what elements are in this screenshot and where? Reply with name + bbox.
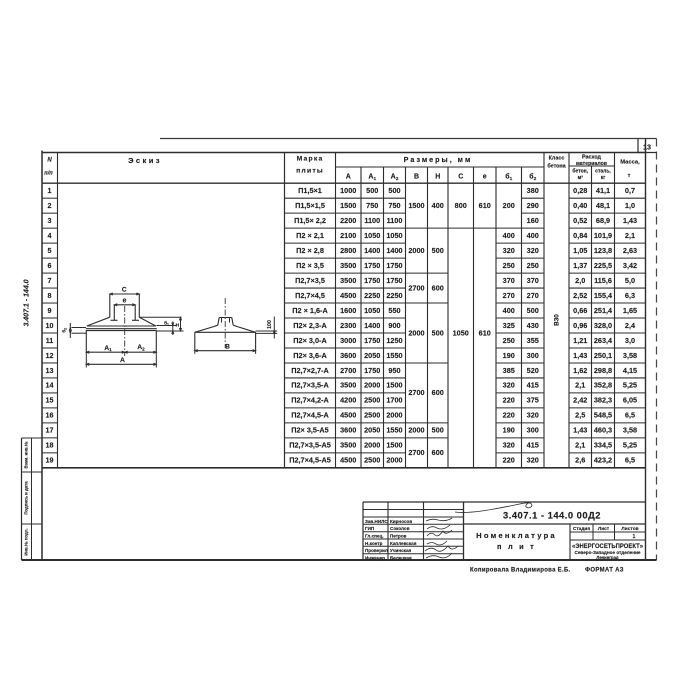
svg-text:1750: 1750 (364, 366, 380, 375)
svg-text:3,58: 3,58 (623, 426, 637, 435)
svg-text:С: С (458, 174, 463, 181)
svg-text:0,40: 0,40 (573, 201, 587, 210)
svg-text:375: 375 (527, 396, 539, 405)
svg-text:А: А (346, 174, 351, 181)
svg-text:П2,7×4,2-А: П2,7×4,2-А (291, 396, 329, 405)
svg-text:6: 6 (48, 261, 52, 270)
svg-text:1,05: 1,05 (573, 246, 587, 255)
svg-text:400: 400 (503, 231, 515, 240)
svg-text:190: 190 (503, 426, 515, 435)
svg-text:Каплевская: Каплевская (390, 541, 417, 546)
svg-text:2,52: 2,52 (573, 291, 587, 300)
svg-text:1000: 1000 (340, 186, 356, 195)
svg-text:«ЭНЕРГОСЕТЬПРОЕКТ»: «ЭНЕРГОСЕТЬПРОЕКТ» (572, 543, 643, 550)
svg-text:4500: 4500 (340, 456, 356, 465)
svg-text:Подпись и дата: Подпись и дата (23, 481, 28, 515)
svg-text:9: 9 (48, 306, 52, 315)
svg-text:1750: 1750 (386, 261, 402, 270)
svg-text:123,8: 123,8 (594, 246, 612, 255)
svg-text:1500: 1500 (386, 381, 402, 390)
svg-text:2700: 2700 (408, 448, 424, 457)
svg-text:1050: 1050 (453, 328, 469, 337)
svg-text:1500: 1500 (408, 201, 424, 210)
svg-text:320: 320 (503, 381, 515, 390)
svg-text:250: 250 (503, 261, 515, 270)
svg-text:Эскиз: Эскиз (128, 156, 162, 165)
svg-text:Соколов: Соколов (390, 526, 410, 531)
svg-text:1: 1 (633, 534, 636, 540)
svg-text:1,43: 1,43 (573, 351, 587, 360)
svg-text:1750: 1750 (364, 336, 380, 345)
svg-text:3.407.1 - 144.0 00Д2: 3.407.1 - 144.0 00Д2 (503, 510, 601, 521)
svg-text:2000: 2000 (408, 426, 424, 435)
svg-text:1,65: 1,65 (623, 306, 637, 315)
svg-text:Марка: Марка (297, 156, 324, 163)
svg-text:250: 250 (527, 261, 539, 270)
svg-text:В30: В30 (554, 314, 561, 326)
svg-text:П2 × 2,8: П2 × 2,8 (296, 246, 324, 255)
svg-text:2000: 2000 (408, 328, 424, 337)
svg-text:Проверил: Проверил (365, 548, 388, 553)
svg-text:2,63: 2,63 (623, 246, 637, 255)
svg-text:900: 900 (388, 321, 400, 330)
svg-text:11: 11 (46, 336, 54, 345)
svg-text:320: 320 (527, 411, 539, 420)
svg-text:5,25: 5,25 (623, 441, 637, 450)
svg-text:П2,7×3,5-А5: П2,7×3,5-А5 (289, 441, 331, 450)
svg-text:10: 10 (46, 321, 54, 330)
svg-text:N: N (47, 158, 52, 164)
svg-text:300: 300 (527, 351, 539, 360)
svg-text:115,6: 115,6 (594, 276, 612, 285)
svg-text:Расход: Расход (582, 155, 602, 161)
svg-text:П2,7×3,5-А: П2,7×3,5-А (291, 381, 329, 390)
svg-text:1600: 1600 (340, 306, 356, 315)
svg-text:е: е (483, 174, 487, 181)
svg-text:750: 750 (388, 201, 400, 210)
svg-text:3500: 3500 (340, 276, 356, 285)
svg-text:355: 355 (527, 336, 539, 345)
svg-text:В: В (414, 174, 419, 181)
svg-text:430: 430 (527, 321, 539, 330)
svg-text:950: 950 (388, 366, 400, 375)
svg-text:3,0: 3,0 (625, 336, 635, 345)
svg-text:18: 18 (46, 441, 54, 450)
svg-text:370: 370 (503, 276, 515, 285)
svg-text:плиты: плиты (296, 168, 324, 175)
svg-text:190: 190 (503, 351, 515, 360)
svg-text:1400: 1400 (364, 321, 380, 330)
svg-text:382,3: 382,3 (594, 396, 612, 405)
svg-text:520: 520 (527, 366, 539, 375)
svg-text:4200: 4200 (340, 396, 356, 405)
svg-text:2500: 2500 (364, 396, 380, 405)
svg-text:3.407.1 - 144.0: 3.407.1 - 144.0 (24, 279, 31, 326)
svg-text:1250: 1250 (386, 336, 402, 345)
svg-text:14: 14 (46, 381, 54, 390)
svg-text:423,2: 423,2 (594, 456, 612, 465)
svg-text:155,4: 155,4 (594, 291, 613, 300)
svg-text:1100: 1100 (364, 216, 380, 225)
svg-text:400: 400 (432, 201, 444, 210)
svg-text:Белецкая: Белецкая (390, 555, 412, 560)
svg-text:ФОРМАТ АЗ: ФОРМАТ АЗ (585, 568, 624, 574)
svg-text:2,1: 2,1 (575, 381, 585, 390)
svg-text:е: е (123, 298, 127, 305)
svg-text:101,9: 101,9 (594, 231, 612, 240)
svg-text:П2,7×2,7-А: П2,7×2,7-А (291, 366, 329, 375)
svg-text:385: 385 (503, 366, 515, 375)
svg-text:1,21: 1,21 (573, 336, 587, 345)
svg-text:бетон,: бетон, (572, 168, 588, 175)
svg-text:2050: 2050 (364, 351, 380, 360)
svg-text:Н: Н (435, 174, 440, 181)
svg-text:2: 2 (48, 201, 52, 210)
svg-text:415: 415 (527, 441, 539, 450)
svg-text:500: 500 (432, 246, 444, 255)
svg-text:1750: 1750 (364, 261, 380, 270)
svg-text:П2,7×4,5-А: П2,7×4,5-А (291, 411, 329, 420)
svg-text:п/п: п/п (44, 171, 53, 177)
svg-text:19: 19 (46, 456, 54, 465)
svg-text:1750: 1750 (386, 276, 402, 285)
svg-text:600: 600 (432, 388, 444, 397)
svg-text:1,37: 1,37 (573, 261, 587, 270)
svg-text:Взам. инв.№: Взам. инв.№ (23, 441, 28, 468)
svg-text:600: 600 (432, 448, 444, 457)
svg-text:68,9: 68,9 (596, 216, 610, 225)
svg-text:300: 300 (527, 426, 539, 435)
svg-text:Инженер: Инженер (365, 555, 385, 560)
svg-text:2,1: 2,1 (625, 231, 635, 240)
svg-text:600: 600 (432, 283, 444, 292)
svg-text:48,1: 48,1 (596, 201, 610, 210)
svg-text:263,4: 263,4 (594, 336, 613, 345)
svg-text:7: 7 (48, 276, 52, 285)
svg-text:П2,7×3,5: П2,7×3,5 (295, 276, 325, 285)
svg-text:Инв.№ подл.: Инв.№ подл. (23, 528, 28, 555)
svg-text:С: С (122, 287, 127, 294)
svg-text:1,0: 1,0 (625, 201, 635, 210)
svg-text:6,5: 6,5 (625, 411, 635, 420)
svg-text:1,43: 1,43 (623, 216, 637, 225)
svg-text:3500: 3500 (340, 381, 356, 390)
svg-text:П2× 3,5-А5: П2× 3,5-А5 (291, 426, 329, 435)
svg-text:Размеры, мм: Размеры, мм (404, 155, 473, 164)
svg-text:100: 100 (267, 320, 273, 329)
svg-text:П2× 3,6-А: П2× 3,6-А (293, 351, 327, 360)
svg-text:ГИП: ГИП (365, 526, 374, 531)
svg-text:12: 12 (46, 351, 54, 360)
svg-text:4,15: 4,15 (623, 366, 637, 375)
svg-text:2000: 2000 (364, 441, 380, 450)
svg-text:П1,5×1,5: П1,5×1,5 (295, 201, 325, 210)
svg-text:1550: 1550 (386, 426, 402, 435)
svg-text:550: 550 (388, 306, 400, 315)
svg-text:220: 220 (503, 411, 515, 420)
svg-text:6,05: 6,05 (623, 396, 637, 405)
svg-text:220: 220 (503, 396, 515, 405)
svg-text:2000: 2000 (386, 411, 402, 420)
svg-text:3: 3 (48, 216, 52, 225)
svg-text:2250: 2250 (364, 291, 380, 300)
svg-text:П2 × 2,1: П2 × 2,1 (296, 231, 324, 240)
svg-text:1,62: 1,62 (573, 366, 587, 375)
svg-text:П2 × 1,6-А: П2 × 1,6-А (292, 306, 328, 315)
svg-text:250: 250 (503, 336, 515, 345)
svg-text:Петров: Петров (390, 533, 407, 538)
svg-text:2,5: 2,5 (575, 411, 585, 420)
svg-text:325: 325 (503, 321, 515, 330)
svg-text:500: 500 (527, 306, 539, 315)
svg-text:1500: 1500 (386, 441, 402, 450)
svg-text:Копировала Владимирова Е.Б.: Копировала Владимирова Е.Б. (470, 568, 571, 574)
svg-text:П1,5× 2,2: П1,5× 2,2 (294, 216, 326, 225)
svg-text:1400: 1400 (364, 246, 380, 255)
svg-text:1750: 1750 (364, 276, 380, 285)
svg-text:320: 320 (527, 246, 539, 255)
svg-text:298,8: 298,8 (594, 366, 612, 375)
svg-text:328,0: 328,0 (594, 321, 612, 330)
svg-text:материалов: материалов (576, 161, 607, 167)
svg-text:334,5: 334,5 (594, 441, 612, 450)
svg-text:2500: 2500 (364, 456, 380, 465)
svg-text:370: 370 (527, 276, 539, 285)
svg-text:0,96: 0,96 (573, 321, 587, 330)
svg-text:2,1: 2,1 (575, 441, 585, 450)
svg-text:610: 610 (479, 201, 491, 210)
svg-text:270: 270 (527, 291, 539, 300)
svg-text:3500: 3500 (340, 261, 356, 270)
svg-text:0,52: 0,52 (573, 216, 587, 225)
svg-text:548,5: 548,5 (594, 411, 612, 420)
svg-text:16: 16 (46, 411, 54, 420)
svg-text:2500: 2500 (364, 411, 380, 420)
svg-text:Ленинград: Ленинград (596, 555, 619, 560)
svg-text:2700: 2700 (408, 388, 424, 397)
svg-text:13: 13 (643, 142, 651, 151)
svg-text:1400: 1400 (386, 246, 402, 255)
svg-text:2000: 2000 (386, 456, 402, 465)
svg-text:500: 500 (432, 328, 444, 337)
svg-text:1500: 1500 (340, 201, 356, 210)
svg-text:290: 290 (527, 201, 539, 210)
svg-text:5,25: 5,25 (623, 381, 637, 390)
svg-text:П2× 2,3-А: П2× 2,3-А (293, 321, 327, 330)
svg-text:т: т (628, 173, 631, 179)
svg-text:Кирносов: Кирносов (390, 519, 412, 524)
svg-text:17: 17 (46, 426, 54, 435)
svg-text:415: 415 (527, 381, 539, 390)
svg-text:3600: 3600 (340, 426, 356, 435)
svg-text:Листов: Листов (621, 526, 638, 532)
svg-text:В: В (225, 344, 230, 351)
svg-text:1: 1 (48, 186, 52, 195)
svg-text:6,3: 6,3 (625, 291, 635, 300)
svg-text:2700: 2700 (408, 283, 424, 292)
svg-text:Н: Н (176, 322, 180, 328)
svg-text:Масса,: Масса, (620, 160, 640, 166)
svg-text:кг: кг (601, 175, 606, 181)
svg-text:380: 380 (527, 186, 539, 195)
svg-text:3600: 3600 (340, 351, 356, 360)
svg-text:41,1: 41,1 (596, 186, 610, 195)
svg-text:1550: 1550 (386, 351, 402, 360)
svg-text:2700: 2700 (340, 366, 356, 375)
svg-text:П1,5×1: П1,5×1 (298, 186, 322, 195)
svg-text:Номенклатура: Номенклатура (476, 531, 557, 540)
svg-text:1050: 1050 (386, 231, 402, 240)
svg-text:бетона: бетона (547, 163, 566, 170)
svg-text:м³: м³ (578, 175, 584, 181)
svg-text:2,4: 2,4 (625, 321, 636, 330)
svg-text:3500: 3500 (340, 441, 356, 450)
svg-text:225,5: 225,5 (594, 261, 612, 270)
svg-text:2250: 2250 (386, 291, 402, 300)
svg-text:4500: 4500 (340, 411, 356, 420)
svg-text:2,0: 2,0 (575, 276, 585, 285)
svg-text:4500: 4500 (340, 291, 356, 300)
svg-text:2,42: 2,42 (573, 396, 587, 405)
svg-text:1050: 1050 (364, 306, 380, 315)
svg-text:2800: 2800 (340, 246, 356, 255)
svg-text:А: А (120, 357, 125, 364)
svg-text:320: 320 (503, 246, 515, 255)
svg-text:200: 200 (503, 201, 515, 210)
svg-text:220: 220 (503, 456, 515, 465)
svg-text:2200: 2200 (340, 216, 356, 225)
svg-text:0,28: 0,28 (573, 186, 587, 195)
svg-text:Стадия: Стадия (573, 526, 590, 532)
svg-text:3,58: 3,58 (623, 351, 637, 360)
svg-text:П2,7×4,5-А5: П2,7×4,5-А5 (289, 456, 331, 465)
svg-text:500: 500 (388, 186, 400, 195)
svg-text:п л и т: п л и т (497, 542, 536, 551)
svg-text:320: 320 (503, 441, 515, 450)
svg-text:2000: 2000 (364, 381, 380, 390)
svg-text:8: 8 (48, 291, 52, 300)
svg-text:400: 400 (527, 231, 539, 240)
svg-text:610: 610 (479, 328, 491, 337)
svg-text:2,6: 2,6 (575, 456, 585, 465)
svg-text:160: 160 (527, 216, 539, 225)
svg-text:Учинская: Учинская (390, 548, 412, 553)
svg-text:сталь,: сталь, (595, 169, 611, 175)
svg-text:460,3: 460,3 (594, 426, 612, 435)
svg-text:П2× 3,0-А: П2× 3,0-А (293, 336, 327, 345)
svg-text:0,66: 0,66 (573, 306, 587, 315)
svg-text:500: 500 (366, 186, 378, 195)
svg-text:5: 5 (48, 246, 52, 255)
svg-text:320: 320 (527, 456, 539, 465)
svg-text:251,4: 251,4 (594, 306, 613, 315)
svg-text:Н.контр: Н.контр (365, 541, 383, 546)
svg-text:250,1: 250,1 (594, 351, 612, 360)
svg-text:Гл.спец.: Гл.спец. (365, 533, 384, 538)
svg-text:2100: 2100 (340, 231, 356, 240)
svg-text:П2 × 3,5: П2 × 3,5 (296, 261, 324, 270)
svg-text:Класс: Класс (549, 156, 565, 162)
svg-text:750: 750 (366, 201, 378, 210)
svg-text:2000: 2000 (408, 246, 424, 255)
svg-text:3000: 3000 (340, 336, 356, 345)
svg-text:800: 800 (455, 201, 467, 210)
svg-text:1700: 1700 (386, 396, 402, 405)
svg-text:2300: 2300 (340, 321, 356, 330)
svg-text:15: 15 (46, 396, 54, 405)
svg-text:4: 4 (48, 231, 52, 240)
svg-text:Лист: Лист (598, 526, 610, 532)
svg-text:1050: 1050 (364, 231, 380, 240)
svg-text:500: 500 (432, 426, 444, 435)
svg-text:3,42: 3,42 (623, 261, 637, 270)
svg-text:270: 270 (503, 291, 515, 300)
svg-text:5,0: 5,0 (625, 276, 635, 285)
svg-text:1,43: 1,43 (573, 426, 587, 435)
svg-text:2050: 2050 (364, 426, 380, 435)
svg-text:400: 400 (503, 306, 515, 315)
svg-text:0,84: 0,84 (573, 231, 588, 240)
svg-text:Зав.НИЛС: Зав.НИЛС (365, 519, 388, 524)
svg-text:6,5: 6,5 (625, 456, 635, 465)
svg-text:1100: 1100 (387, 216, 403, 225)
svg-text:0,7: 0,7 (625, 186, 635, 195)
svg-text:П2,7×4,5: П2,7×4,5 (295, 291, 325, 300)
svg-text:352,8: 352,8 (594, 381, 612, 390)
svg-text:13: 13 (46, 366, 54, 375)
